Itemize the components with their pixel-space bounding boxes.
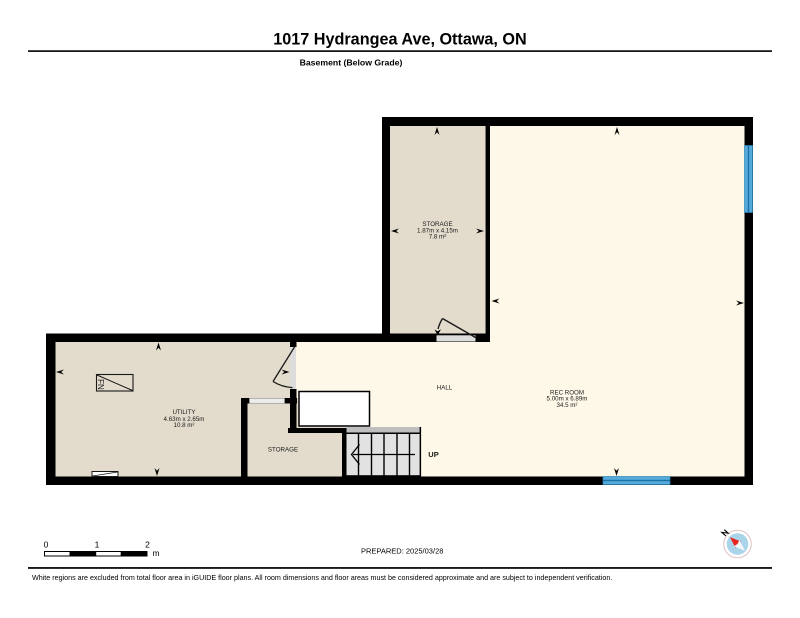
svg-text:1: 1 [95,540,100,550]
svg-text:34.5 m²: 34.5 m² [557,402,578,409]
svg-text:Basement (Below Grade): Basement (Below Grade) [300,58,403,68]
svg-text:HALL: HALL [437,385,453,392]
svg-text:0: 0 [44,540,49,550]
svg-text:m: m [153,548,160,558]
svg-text:White regions are excluded fro: White regions are excluded from total fl… [32,574,612,582]
svg-text:10.8 m²: 10.8 m² [174,422,195,429]
svg-text:UP: UP [428,450,438,459]
svg-text:2: 2 [145,540,150,550]
svg-text:7.8 m²: 7.8 m² [429,234,447,241]
svg-text:STORAGE: STORAGE [268,447,298,454]
svg-text:FN: FN [96,379,105,390]
svg-text:PREPARED: 2025/03/28: PREPARED: 2025/03/28 [361,547,443,556]
svg-text:1017 Hydrangea Ave, Ottawa, ON: 1017 Hydrangea Ave, Ottawa, ON [273,31,526,49]
